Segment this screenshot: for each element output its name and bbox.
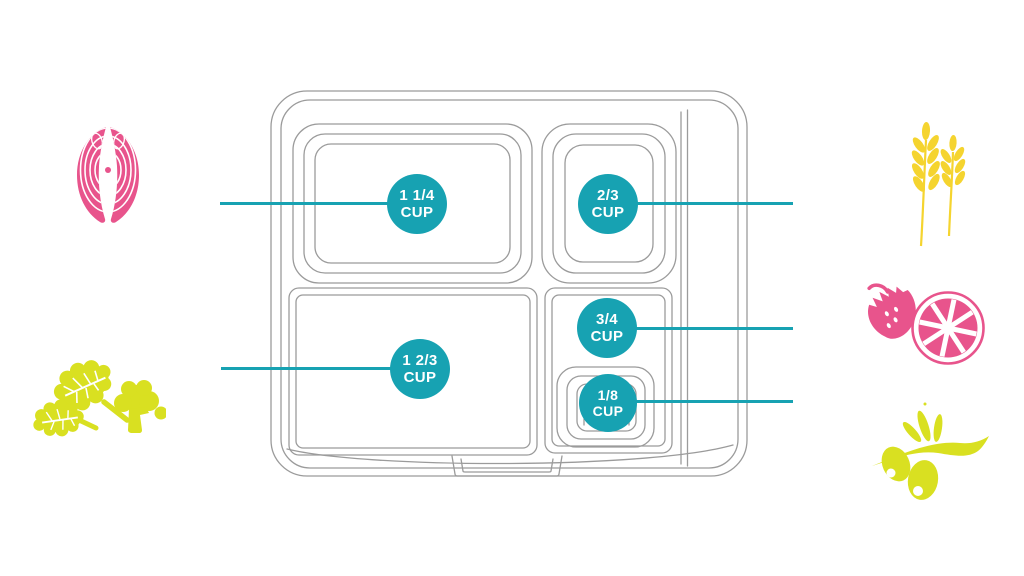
leafy-greens-icon bbox=[31, 358, 127, 439]
olive-branch-icon bbox=[868, 398, 992, 506]
portion-amount: 1 1/4 bbox=[399, 187, 434, 204]
lunchbox-portion-infographic: 1 1/4 CUP 2/3 CUP 3/4 CUP 1/8 CUP 1 2/3 … bbox=[0, 0, 1024, 576]
portion-badge-middle-right: 3/4 CUP bbox=[577, 298, 637, 358]
vegetable-icons bbox=[30, 358, 166, 458]
wheat-stalks-icon bbox=[896, 118, 972, 248]
citrus-slice-icon bbox=[913, 293, 984, 364]
broccoli-icon bbox=[114, 380, 166, 433]
portion-unit: CUP bbox=[592, 204, 625, 221]
portion-badge-top-left: 1 1/4 CUP bbox=[387, 174, 447, 234]
portion-unit: CUP bbox=[593, 403, 624, 419]
callout-line-bottom-left bbox=[221, 367, 393, 370]
callout-line-top-left bbox=[220, 202, 392, 205]
portion-amount: 3/4 bbox=[596, 311, 618, 328]
portion-amount: 1 2/3 bbox=[402, 352, 437, 369]
portion-badge-top-right: 2/3 CUP bbox=[578, 174, 638, 234]
portion-amount: 2/3 bbox=[597, 187, 619, 204]
portion-badge-small-right: 1/8 CUP bbox=[579, 374, 637, 432]
callout-line-middle-right bbox=[632, 327, 793, 330]
portion-badge-bottom-left: 1 2/3 CUP bbox=[390, 339, 450, 399]
callout-line-small-right bbox=[630, 400, 793, 403]
fruit-icons bbox=[860, 280, 986, 368]
portion-unit: CUP bbox=[591, 328, 624, 345]
portion-amount: 1/8 bbox=[598, 387, 619, 403]
portion-unit: CUP bbox=[401, 204, 434, 221]
salmon-fillet-icon bbox=[72, 126, 144, 226]
callout-line-top-right bbox=[633, 202, 793, 205]
portion-unit: CUP bbox=[404, 369, 437, 386]
